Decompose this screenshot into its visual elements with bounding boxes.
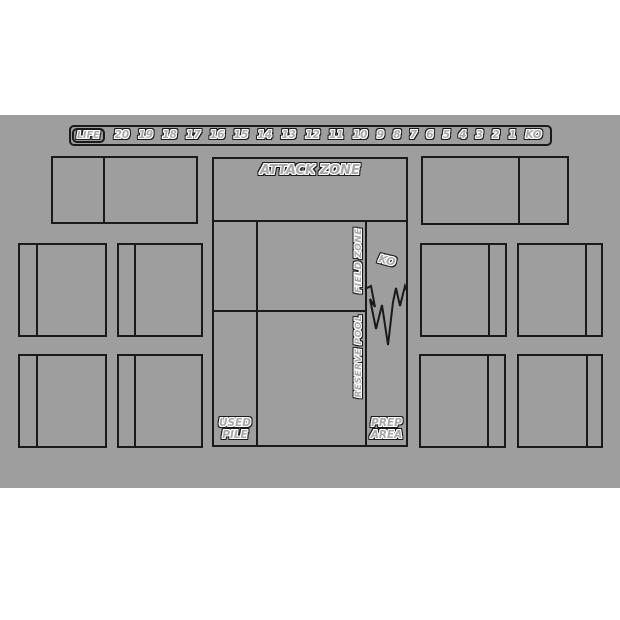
left-column: USED PILE: [214, 222, 258, 445]
life-label: LIFE: [72, 128, 105, 143]
field-zone[interactable]: FIELD ZONE: [258, 222, 365, 312]
card-slot-top-left[interactable]: [51, 156, 198, 224]
card-slot-right-bottom-2[interactable]: [517, 354, 603, 448]
life-value[interactable]: 14: [258, 130, 273, 141]
left-column-cell[interactable]: [214, 222, 256, 312]
life-value[interactable]: 16: [210, 130, 225, 141]
prep-area-label: PREP AREA: [367, 417, 406, 441]
life-value[interactable]: 3: [476, 130, 483, 141]
life-value[interactable]: 7: [410, 130, 417, 141]
life-value[interactable]: 1: [509, 130, 516, 141]
life-values: 2019181716151413121110987654321KO: [105, 130, 550, 141]
used-pile-label: USED PILE: [219, 417, 251, 441]
used-pile-zone[interactable]: USED PILE: [214, 312, 256, 445]
life-value[interactable]: 4: [459, 130, 466, 141]
life-value[interactable]: 13: [281, 130, 296, 141]
slot-divider: [36, 245, 38, 335]
life-value[interactable]: KO: [525, 130, 541, 141]
attack-zone[interactable]: ATTACK ZONE: [214, 159, 406, 222]
slot-divider: [585, 245, 587, 335]
ko-burst-icon: [364, 285, 408, 349]
field-zone-label: FIELD ZONE: [355, 228, 364, 293]
life-value[interactable]: 2: [492, 130, 499, 141]
life-value[interactable]: 6: [426, 130, 433, 141]
attack-zone-label: ATTACK ZONE: [260, 164, 360, 177]
card-slot-left-mid-1[interactable]: [18, 243, 107, 337]
life-value[interactable]: 9: [377, 130, 384, 141]
page-background: LIFE 2019181716151413121110987654321KO: [0, 0, 620, 620]
slot-divider: [103, 158, 105, 222]
life-value[interactable]: 10: [353, 130, 368, 141]
reserve-pool-label: RESERVE POOL: [355, 315, 364, 398]
card-slot-left-bottom-1[interactable]: [18, 354, 107, 448]
card-slot-left-mid-2[interactable]: [117, 243, 203, 337]
reserve-pool-zone[interactable]: RESERVE POOL: [258, 312, 365, 445]
playmat: LIFE 2019181716151413121110987654321KO: [0, 115, 620, 488]
card-slot-top-right[interactable]: [421, 156, 569, 225]
life-track: LIFE 2019181716151413121110987654321KO: [69, 125, 552, 146]
prep-area-zone[interactable]: PREP AREA: [367, 417, 406, 441]
ko-label: KO: [377, 253, 396, 268]
slot-divider: [134, 356, 136, 446]
middle-column: FIELD ZONE RESERVE POOL: [258, 222, 367, 445]
card-slot-right-mid-2[interactable]: [517, 243, 603, 337]
card-slot-right-mid-1[interactable]: [420, 243, 507, 337]
life-value[interactable]: 12: [305, 130, 320, 141]
card-slot-left-bottom-2[interactable]: [117, 354, 203, 448]
slot-divider: [518, 158, 520, 223]
slot-divider: [487, 356, 489, 446]
life-value[interactable]: 11: [329, 130, 344, 141]
slot-divider: [36, 356, 38, 446]
life-value[interactable]: 19: [138, 130, 153, 141]
life-value[interactable]: 20: [115, 130, 130, 141]
life-value[interactable]: 15: [234, 130, 249, 141]
life-value[interactable]: 5: [443, 130, 450, 141]
life-value[interactable]: 18: [162, 130, 177, 141]
life-value[interactable]: 8: [393, 130, 400, 141]
life-value[interactable]: 17: [186, 130, 201, 141]
slot-divider: [134, 245, 136, 335]
card-slot-right-bottom-1[interactable]: [419, 354, 506, 448]
slot-divider: [488, 245, 490, 335]
slot-divider: [586, 356, 588, 446]
